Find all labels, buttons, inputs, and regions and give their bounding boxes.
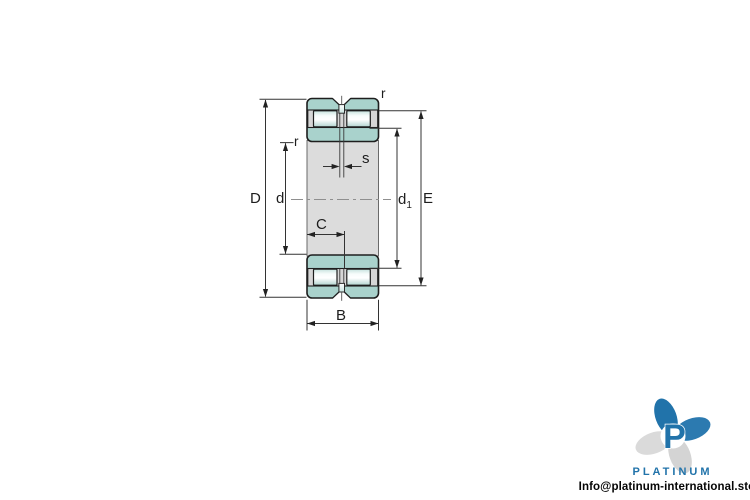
dim-label-outer-shoulder-diameter: E (423, 191, 433, 207)
roller (347, 269, 371, 285)
brand-email: Info@platinum-international.store (570, 481, 750, 494)
dim-label-outer-diameter: D (250, 191, 261, 207)
dim-label-rib-width: C (316, 217, 327, 233)
dim-label-width: B (336, 308, 346, 324)
dim-label-inner-shoulder-diameter: d1 (398, 192, 412, 211)
dim-label-bore-diameter: d (276, 191, 284, 207)
brand-wordmark: PLATINUM (570, 466, 750, 479)
roller (314, 269, 338, 285)
bearing-bottom-section (307, 255, 379, 301)
dim-label-radius-inner: r (294, 134, 299, 150)
page: D d d1 E B C s r r P PLATINUM Info@plati… (0, 0, 750, 500)
roller (314, 111, 338, 127)
platinum-logo-icon: P (623, 397, 723, 475)
brand-monogram: P (663, 418, 686, 456)
roller (347, 111, 371, 127)
platinum-logo: P PLATINUM Info@platinum-international.s… (570, 397, 750, 494)
dim-label-groove-width: s (362, 151, 370, 167)
dim-label-radius-outer: r (381, 86, 386, 102)
